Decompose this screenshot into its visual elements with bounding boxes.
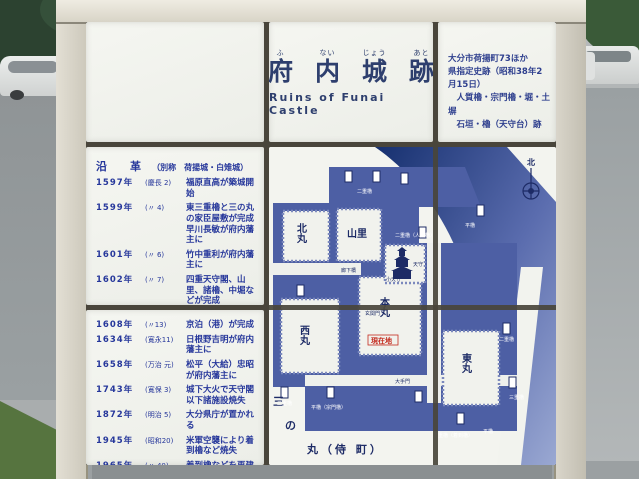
entry-text: 四重天守閣、山里、諸櫓、中堀などが完成 [186, 275, 258, 305]
structure-label: 大手門 [395, 378, 410, 385]
title-char: じょう 城 [362, 48, 387, 84]
entry-year: 1872年 [96, 410, 142, 431]
tile-title: ふ 府 ない 内 じょう 城 あと 跡 Ruins of Funai Castl… [269, 22, 433, 142]
history-entry: 1597年 (慶長 2) 福原直高が築城開始 [96, 178, 258, 199]
entry-era: (昭和20) [145, 436, 183, 457]
history-alias-note: （別称 荷揚城・白雉城） [152, 163, 248, 172]
entry-text: 日根野吉明が府内藩主に [186, 335, 258, 356]
tower-icon [415, 391, 422, 402]
pavement-right [579, 88, 639, 479]
entry-era: (〃13) [145, 320, 183, 331]
entry-era: (〃 7) [145, 275, 183, 305]
tower-icon [401, 173, 408, 184]
entry-text: 京泊（港）が完成 [186, 320, 258, 331]
tile-history-1: 沿 革 （別称 荷揚城・白雉城） 1597年 (慶長 2) 福原直高が築城開始 … [86, 147, 264, 305]
designation-text: 大分市荷揚町73ほか 県指定史跡（昭和38年2月15日） 人質櫓・宗門櫓・堀・土… [438, 53, 556, 142]
entry-year: 1597年 [96, 178, 142, 199]
sannomaru-rest: 丸（侍 町） [306, 442, 384, 456]
history-entry: 1608年 (〃13) 京泊（港）が完成 [96, 320, 258, 331]
furigana: あと [414, 48, 430, 58]
entry-era: (〃 40) [145, 461, 183, 465]
tile-blank [86, 22, 264, 142]
structure-label: 廊下橋 [341, 267, 356, 274]
tower-icon [297, 285, 304, 296]
history-entry: 1599年 (〃 4) 東三重櫓と三の丸の家臣屋敷が完成 早川長敏が府内藩主に [96, 203, 258, 246]
history-entry: 1601年 (〃 6) 竹中重利が府内藩主に [96, 250, 258, 271]
tower-icon [373, 171, 380, 182]
structure-label: 二重櫓（着到櫓） [433, 432, 473, 439]
kanji: 内 [315, 59, 340, 84]
sign-frame-right-post [554, 0, 586, 479]
nishimaru-area [281, 299, 339, 373]
furigana: ふ [276, 48, 284, 58]
ceramic-tile-grid: ふ 府 ない 内 じょう 城 あと 跡 Ruins of Funai Castl… [86, 22, 556, 465]
structure-label: 平櫓（宗門櫓） [311, 404, 346, 411]
structure-label: 天守 [413, 261, 423, 268]
entry-text: 東三重櫓と三の丸の家臣屋敷が完成 早川長敏が府内藩主に [186, 203, 258, 246]
entry-year: 1634年 [96, 335, 142, 356]
kanji: 跡 [409, 59, 433, 84]
tower-icon [509, 377, 516, 388]
tile-seam-horizontal [269, 305, 556, 310]
entry-text: 福原直高が築城開始 [186, 178, 258, 199]
sannomaru-char2: の [285, 419, 296, 432]
furigana: じょう [363, 48, 387, 58]
structure-label: 二重櫓 [357, 188, 372, 195]
tile-map: 北丸 山里 本丸 西丸 東丸 三 の 丸（侍 町） 現在地 [269, 147, 556, 465]
compass-north-label: 北 [527, 157, 535, 167]
entry-era: (寛永11) [145, 335, 183, 356]
history-entry: 1945年 (昭和20) 米軍空襲により着到櫓など焼失 [96, 436, 258, 457]
yamazato-label: 山里 [347, 227, 367, 240]
kanji: 城 [362, 59, 387, 84]
entry-text: 米軍空襲により着到櫓など焼失 [186, 436, 258, 457]
history-entry: 1872年 (明治 5) 大分県庁が置かれる [96, 410, 258, 431]
kitamaru-area [283, 211, 329, 261]
tile-history-2: 1608年 (〃13) 京泊（港）が完成 1634年 (寛永11) 日根野吉明が… [86, 310, 264, 465]
history-header: 沿 革 （別称 荷揚城・白雉城） [96, 155, 258, 174]
car-window [8, 61, 58, 73]
tower-icon [457, 413, 464, 424]
structure-label: 二重櫓 [499, 336, 514, 343]
entry-era: (〃 6) [145, 250, 183, 271]
entry-year: 1608年 [96, 320, 142, 331]
tower-icon [503, 323, 510, 334]
title-english: Ruins of Funai Castle [269, 91, 433, 117]
sign-frame-top-bar [56, 0, 586, 24]
structure-label: 三重櫓 [509, 394, 524, 401]
structure-label: 平櫓 [483, 428, 493, 435]
entry-era: (明治 5) [145, 410, 183, 431]
current-location-label: 現在地 [371, 336, 392, 345]
title-kanji-row: ふ 府 ない 内 じょう 城 あと 跡 [269, 48, 433, 84]
furigana: ない [319, 48, 335, 58]
tower-icon [477, 205, 484, 216]
entry-text: 城下大火で天守閣以下諸施設焼失 [186, 385, 258, 406]
history-entry: 1743年 (寛保 3) 城下大火で天守閣以下諸施設焼失 [96, 385, 258, 406]
structure-label: 小天守 [386, 276, 401, 283]
entry-year: 1599年 [96, 203, 142, 246]
history-entry: 1602年 (〃 7) 四重天守閣、山里、諸櫓、中堀などが完成 [96, 275, 258, 305]
funai-castle-signboard: ふ 府 ない 内 じょう 城 あと 跡 Ruins of Funai Castl… [56, 0, 586, 479]
higashimaru-area [443, 331, 499, 405]
structure-label: 平櫓 [465, 222, 475, 229]
entry-text: 竹中重利が府内藩主に [186, 250, 258, 271]
car-wheel [10, 90, 24, 100]
kanji: 府 [269, 59, 293, 84]
title-char: ふ 府 [269, 48, 293, 84]
history-entry: 1658年 (万治 元) 松平（大給）忠昭が府内藩主に [96, 360, 258, 381]
tower-icon [327, 387, 334, 398]
entry-text: 大分県庁が置かれる [186, 410, 258, 431]
entry-year: 1965年 [96, 461, 142, 465]
structure-label: 二重櫓（人質櫓） [395, 232, 435, 239]
title-char: あと 跡 [409, 48, 433, 84]
entry-text: 松平（大給）忠昭が府内藩主に [186, 360, 258, 381]
tile-designation: 大分市荷揚町73ほか 県指定史跡（昭和38年2月15日） 人質櫓・宗門櫓・堀・土… [438, 22, 556, 142]
entry-year: 1658年 [96, 360, 142, 381]
entry-year: 1601年 [96, 250, 142, 271]
entry-year: 1945年 [96, 436, 142, 457]
entry-text: 着到櫓などを再建 [186, 461, 258, 465]
history-heading: 沿 革 [96, 160, 147, 173]
structure-label: 二重櫓 [277, 400, 292, 407]
entry-year: 1743年 [96, 385, 142, 406]
sign-frame-left-post [56, 0, 88, 479]
structure-label: 玄関門 [365, 310, 380, 317]
title-char: ない 内 [315, 48, 340, 84]
tower-icon [345, 171, 352, 182]
entry-era: (〃 4) [145, 203, 183, 246]
entry-era: (慶長 2) [145, 178, 183, 199]
entry-era: (万治 元) [145, 360, 183, 381]
history-entry: 1965年 (〃 40) 着到櫓などを再建 [96, 461, 258, 465]
entry-year: 1602年 [96, 275, 142, 305]
entry-era: (寛保 3) [145, 385, 183, 406]
history-entry: 1634年 (寛永11) 日根野吉明が府内藩主に [96, 335, 258, 356]
